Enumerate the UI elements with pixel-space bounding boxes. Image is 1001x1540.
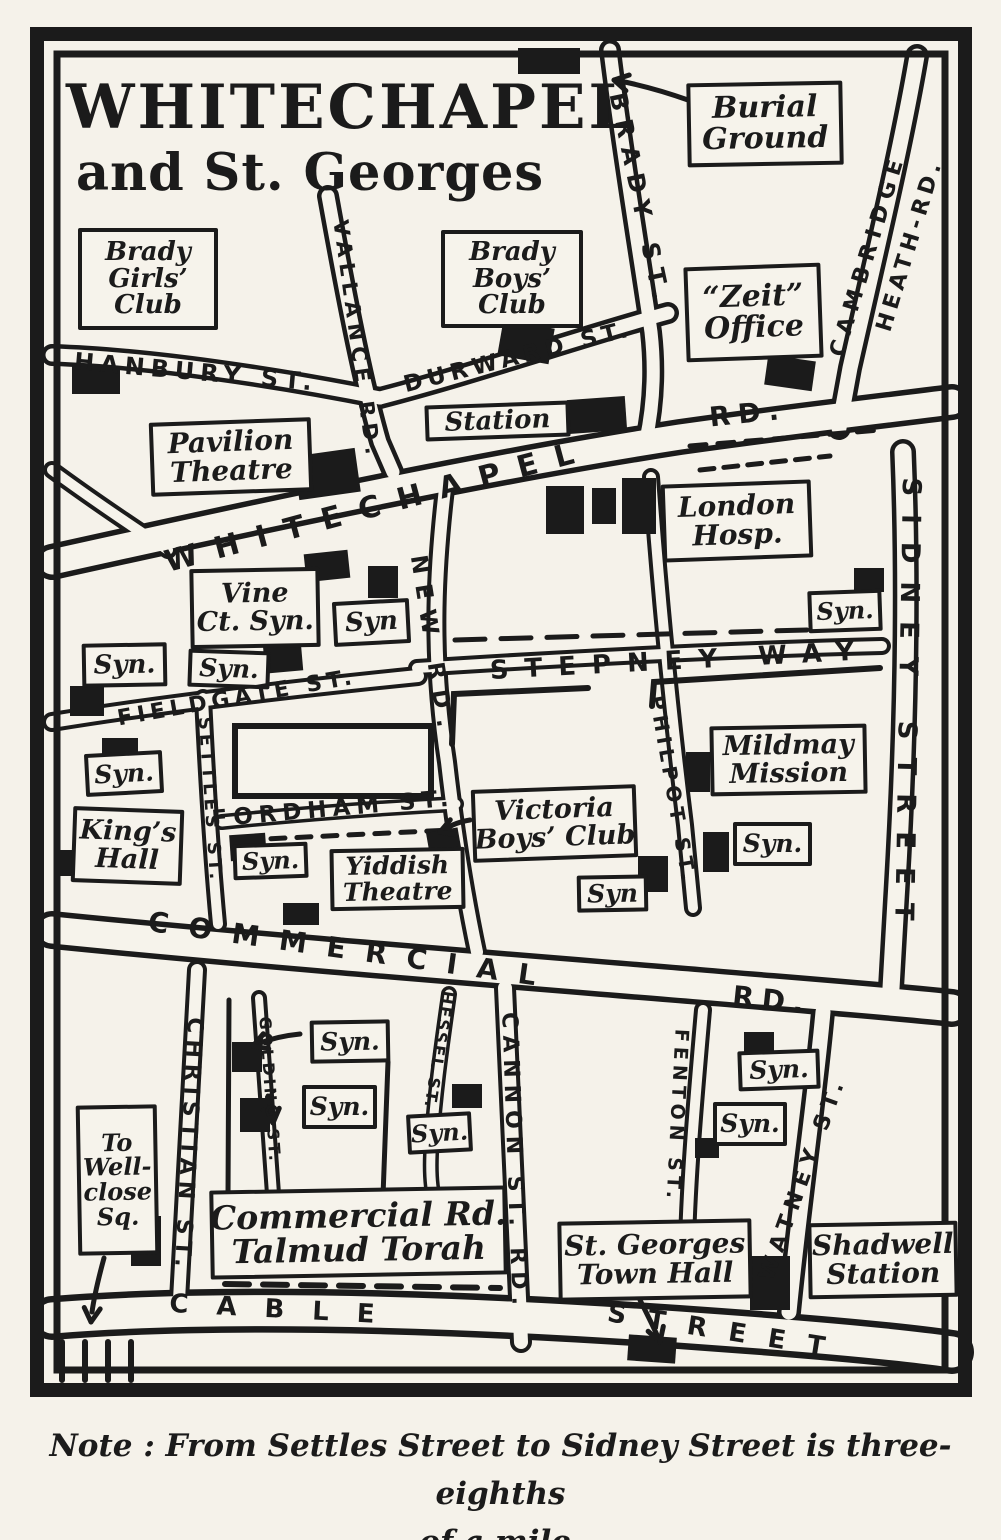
syn-fenton-1-label: Syn. — [737, 1049, 820, 1092]
syn-fordham-label: Syn. — [232, 842, 308, 881]
shadwell-station-label-text: Station — [826, 1259, 940, 1290]
zeit-office-label: “Zeit”Office — [683, 263, 823, 363]
zeit-office-label-text: Office — [704, 311, 805, 345]
syn-golding-1-label: Syn. — [310, 1019, 391, 1063]
syn-golding-2-label: Syn. — [302, 1085, 377, 1129]
talmud-torah-label: Commercial Rd.Talmud Torah — [209, 1185, 508, 1279]
syn-fenton-2-label-text: Syn. — [720, 1111, 779, 1137]
syn-fenton-1-label-text: Syn. — [749, 1056, 809, 1084]
durward-st-name: DURWARD ST. — [401, 316, 635, 398]
syn-settles-label-text: Syn. — [94, 759, 155, 788]
syn-fieldgate-west-label: Syn. — [82, 642, 168, 687]
syn-victoria-label: Syn — [577, 874, 649, 912]
fenton-st-name: FENTON ST. — [661, 1028, 692, 1203]
kings-hall-label-text: Hall — [95, 845, 159, 875]
victoria-boys-club-label-text: Boys’ Club — [474, 821, 636, 854]
syn-fieldgate-east-label-text: Syn. — [199, 655, 259, 683]
pavilion-theatre-label: PavilionTheatre — [149, 417, 313, 497]
syn-hessel-label-text: Syn. — [410, 1119, 468, 1147]
syn-new-rd-label-text: Syn — [344, 608, 398, 637]
hessel-st-name: HESSEL ST. — [420, 990, 457, 1111]
whitechapel-rd-suffix: RD. — [708, 395, 788, 434]
syn-new-rd-label: Syn — [332, 598, 411, 647]
mildmay-mission-label: MildmayMission — [709, 724, 867, 797]
syn-golding-1-label-text: Syn. — [320, 1028, 380, 1055]
brady-girls-club-label-text: Girls’ — [108, 266, 187, 293]
syn-victoria-label-text: Syn — [587, 880, 638, 907]
burial-ground-label: BurialGround — [686, 81, 843, 168]
scale-note-line2: of a mile. — [0, 1518, 1001, 1540]
brady-boys-club-label-text: Boys’ — [473, 266, 551, 293]
stepney-way-name: STEPNEY WAY — [489, 636, 871, 686]
syn-philpot-label: Syn. — [733, 822, 812, 866]
kings-hall-label-text: King’s — [79, 817, 177, 848]
to-wellclose-sq-label-text: Sq. — [97, 1204, 140, 1229]
brady-st-name: BRADY ST. — [603, 90, 676, 310]
syn-fieldgate-west-label-text: Syn. — [93, 651, 155, 679]
syn-philpot-label-text: Syn. — [743, 831, 802, 857]
cable-name: CABLE — [169, 1289, 404, 1331]
map-page: WHITECHAPEL and St. Georges BurialGround… — [0, 0, 1001, 1540]
mildmay-mission-label-text: Mission — [729, 759, 848, 789]
philpot-st-name: PHILPOT ST. — [645, 694, 702, 887]
sidney-street-name: SIDNEY STREET — [888, 477, 926, 939]
syn-sidney-label: Syn. — [807, 589, 882, 634]
brady-boys-club-label-text: Club — [478, 292, 546, 319]
syn-settles-label: Syn. — [84, 750, 164, 797]
fordham-st-name: FORDHAM ST. — [211, 785, 456, 832]
shadwell-station-label: ShadwellStation — [807, 1221, 958, 1300]
pavilion-theatre-label-text: Theatre — [170, 455, 294, 488]
cable-street-suffix: STREET — [605, 1298, 848, 1365]
station-label: Station — [424, 400, 570, 441]
christian-st-name: CHRISTIAN ST. — [169, 1017, 207, 1274]
scale-note: Note : From Settles Street to Sidney Str… — [0, 1422, 1001, 1540]
kings-hall-label: King’sHall — [71, 806, 185, 886]
station-label-text: Station — [444, 406, 551, 436]
yiddish-theatre-label: YiddishTheatre — [329, 847, 465, 911]
hanbury-st-name: HANBURY ST. — [73, 347, 319, 396]
brady-boys-club-label-text: Brady — [469, 239, 555, 266]
syn-hessel-label: Syn. — [406, 1111, 473, 1154]
to-wellclose-sq-label: ToWell-closeSq. — [76, 1104, 160, 1255]
settles-st-name: SETTLES ST. — [194, 716, 227, 884]
syn-fordham-label-text: Syn. — [242, 848, 300, 875]
victoria-boys-club-label: VictoriaBoys’ Club — [471, 784, 638, 863]
london-hosp-label-text: Hosp. — [692, 519, 783, 551]
vine-ct-syn-label: VineCt. Syn. — [189, 567, 320, 649]
syn-fenton-2-label: Syn. — [713, 1102, 787, 1146]
label-layer: BurialGround“Zeit”OfficeBradyGirls’ClubB… — [0, 0, 1001, 1540]
scale-note-line1: Note : From Settles Street to Sidney Str… — [0, 1422, 1001, 1518]
brady-girls-club-label-text: Club — [114, 292, 182, 319]
brady-girls-club-label-text: Brady — [105, 239, 191, 266]
syn-golding-2-label-text: Syn. — [310, 1094, 369, 1120]
london-hosp-label: LondonHosp. — [661, 479, 814, 562]
burial-ground-label-text: Ground — [702, 123, 829, 156]
vine-ct-syn-label-text: Vine — [221, 580, 289, 609]
new-rd-name: NEW RD. — [405, 553, 459, 739]
brady-boys-club-label: BradyBoys’Club — [441, 230, 583, 328]
talmud-torah-label-text: Talmud Torah — [231, 1230, 486, 1268]
st-georges-town-hall-label: St. GeorgesTown Hall — [557, 1218, 752, 1301]
brady-girls-club-label: BradyGirls’Club — [78, 228, 218, 330]
vallance-rd-name: VALLANCE RD. — [328, 218, 385, 461]
commercial-name: COMMERCIAL — [146, 905, 558, 995]
yiddish-theatre-label-text: Theatre — [343, 878, 453, 906]
commercial-rd-suffix: RD. — [731, 979, 813, 1020]
golding-st-name: GOLDING ST. — [255, 1016, 284, 1164]
vine-ct-syn-label-text: Ct. Syn. — [197, 607, 314, 637]
st-georges-town-hall-label-text: Town Hall — [577, 1259, 734, 1291]
syn-sidney-label-text: Syn. — [816, 598, 874, 625]
